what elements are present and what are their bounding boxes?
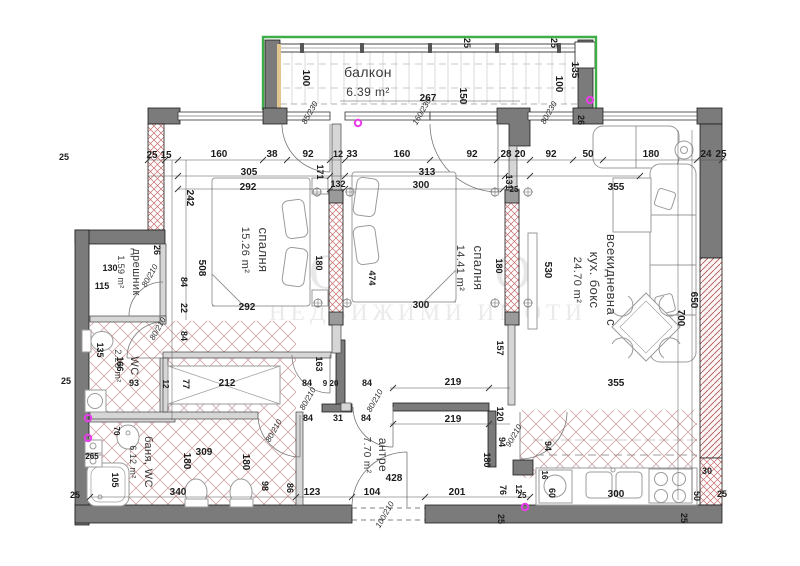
dimension-label: 76 [498,485,508,495]
dimension-label: 31 [333,413,343,423]
dimension-label: 115 [95,281,110,291]
dimension-label: 50 [692,491,702,501]
dimension-label: 340 [170,487,187,498]
door-size-label: 80/210 [298,385,318,411]
room-label: всекидневна с [604,234,619,326]
dimension-label: 300 [608,489,625,500]
wall-bath-right [296,412,303,505]
floor-plan-canvas: О М О НЕДВИЖИМИ ИМОТИ [0,0,800,566]
dimension-label: 123 [304,487,321,498]
dimension-label: 25 [496,514,506,524]
room-label: спалня [256,228,271,273]
room-label: антре [376,438,390,472]
dimension-label: 474 [367,270,377,285]
room-label: дрешник [130,248,142,295]
dimension-label: 166 [115,356,125,371]
dimension-label: 157 [495,340,505,355]
dimension-label: 160 [394,149,411,160]
dimension-label: 12 [161,380,170,389]
wall-bath-top [90,412,258,419]
windows [178,112,697,120]
dimension-label: 265 [85,452,99,461]
room-label: 14.41 m² [454,245,466,292]
dimension-label: 22 [179,303,189,313]
dimension-label: 25 [70,490,80,500]
window-bedroom1 [178,112,263,120]
dimension-label: 86 [285,483,295,493]
room-label: 6.39 m² [346,85,389,99]
dimension-label: 25 [717,489,727,499]
dimension-label: 180 [482,452,492,467]
dimension-label: 20 [514,149,526,160]
partition-bedrooms [329,190,343,325]
dimension-label: 25 [146,150,158,161]
dimension-label: 25 [59,152,69,162]
wall-closet-bottom [90,316,166,322]
wall-pier-bedroom2 [497,108,530,146]
dimension-label: 219 [445,414,462,425]
dimension-label: 16 [540,471,549,480]
window-living-right [603,112,697,120]
dimension-label: 30 [702,466,712,476]
dimension-label: 355 [608,378,625,389]
dimension-label: 25 [462,38,472,48]
dimension-label: 25 [61,376,71,386]
wall-left-hatched [148,124,164,230]
room-label: 7.70 m² [361,437,372,474]
dimension-label: 25 [679,513,689,523]
dimension-label: 105 [110,472,120,487]
door-size-label: 100/210 [374,500,397,530]
dimension-label: 38 [266,149,278,160]
room-label: 24.70 m² [571,257,583,304]
toilet-2-icon [230,479,253,507]
dimension-label: 25 [549,38,559,48]
bathtub-icon [87,463,129,506]
dimension-label: 84 [362,378,372,388]
dimension-label: 26 [576,115,586,125]
dimension-label: 100 [553,76,564,93]
dimension-label: 28 [500,149,512,160]
tv-board-icon [528,233,537,329]
wall-top-left-corner [148,108,180,124]
dimension-label: 100 [300,70,311,87]
dimension-label: 292 [240,182,257,193]
dimension-label: 92 [545,149,557,160]
dimension-label: 25 [510,185,519,194]
dimension-label: 180 [181,453,192,470]
dimension-label: 15 [160,150,172,161]
balcony-door-bedroom2 [430,112,497,120]
axis-marker-icon [490,187,500,197]
dimension-label: 180 [240,454,251,471]
dimension-label: 180 [643,149,660,160]
dimension-label: 700 [675,310,686,327]
dimension-label: 12 [333,149,343,159]
dimension-label: 309 [196,447,213,458]
dimension-label: 219 [445,377,462,388]
dimension-label: 104 [364,487,381,498]
dimension-label: 135 [95,342,105,357]
wall-right-upper [700,124,722,258]
dimension-label: 300 [413,180,430,191]
door-size-label: 80/210 [365,387,385,413]
dimension-label: 84 [179,277,189,287]
dimension-label: 20 [330,379,339,388]
wall-right-hatched [700,258,722,458]
dimension-label: 84 [361,413,371,423]
toilet-icon [185,479,208,507]
dimension-label: 130 [102,263,117,273]
room-label: баня, WC [142,436,154,488]
dimension-label: 242 [184,190,195,207]
wall-bedroom1-south [163,352,331,358]
dimension-label: 163 [314,356,324,371]
wall-top-right-corner [697,108,722,124]
room-label: кух. бокс [587,252,602,309]
dimension-label: 120 [495,406,505,421]
dimension-label: 313 [419,167,436,178]
dimension-label: 201 [449,487,466,498]
dimension-label: 132 [330,179,345,189]
dimension-label: 84 [179,331,189,341]
dimension-label: 94 [543,441,553,451]
dimension-label: 60 [547,488,557,498]
dimension-label: 212 [219,378,236,389]
dimension-label: 292 [239,302,256,313]
axis-marker-icon [523,187,533,197]
dimension-label: 84 [303,413,313,423]
marker-dot-icon [355,120,361,126]
room-label: WC [128,356,140,375]
wall-bottom-left [75,505,352,523]
dimension-label: 77 [181,379,191,389]
wall-kitchen-block [513,460,533,475]
wall-pier-bedroom1 [263,108,287,124]
room-label: спалня [471,246,486,291]
dimension-label: 25 [518,491,527,500]
room-label: 6.12 m² [128,445,138,478]
dimension-label: 93 [129,378,139,388]
dimension-label: 650 [688,292,699,309]
dimension-label: 150 [457,88,468,105]
dimension-label: 300 [413,300,430,311]
dimension-label: 92 [466,149,478,160]
dimension-label: 50 [582,149,594,160]
dimension-label: 530 [542,262,553,279]
dimension-label: 160 [211,149,228,160]
dimension-label: 24 [700,149,712,160]
room-label: балкон [344,64,392,80]
floor-plan-page: О М О НЕДВИЖИМИ ИМОТИ [0,0,800,566]
dimension-label: 135 [569,62,580,79]
dimension-label: 9 [323,379,328,388]
dimension-label: 33 [346,149,358,160]
dimension-label: 25 [715,149,727,160]
room-label: 15.26 m² [239,227,251,274]
dimension-label: 171 [315,164,325,179]
partition-living [505,190,519,325]
dimension-label: 92 [302,149,314,160]
dimension-label: 305 [241,167,258,178]
dimension-label: 180 [314,255,324,270]
dimension-label: 508 [196,260,207,277]
dimension-label: 180 [494,258,504,273]
dimension-label: 26 [152,245,162,255]
dimension-label: 70 [112,427,121,436]
dimension-label: 355 [608,182,625,193]
dimension-label: 428 [386,473,403,484]
wall-bottom-right [425,505,722,523]
dimension-label: 98 [260,481,270,491]
wall-hall-top [393,403,489,411]
